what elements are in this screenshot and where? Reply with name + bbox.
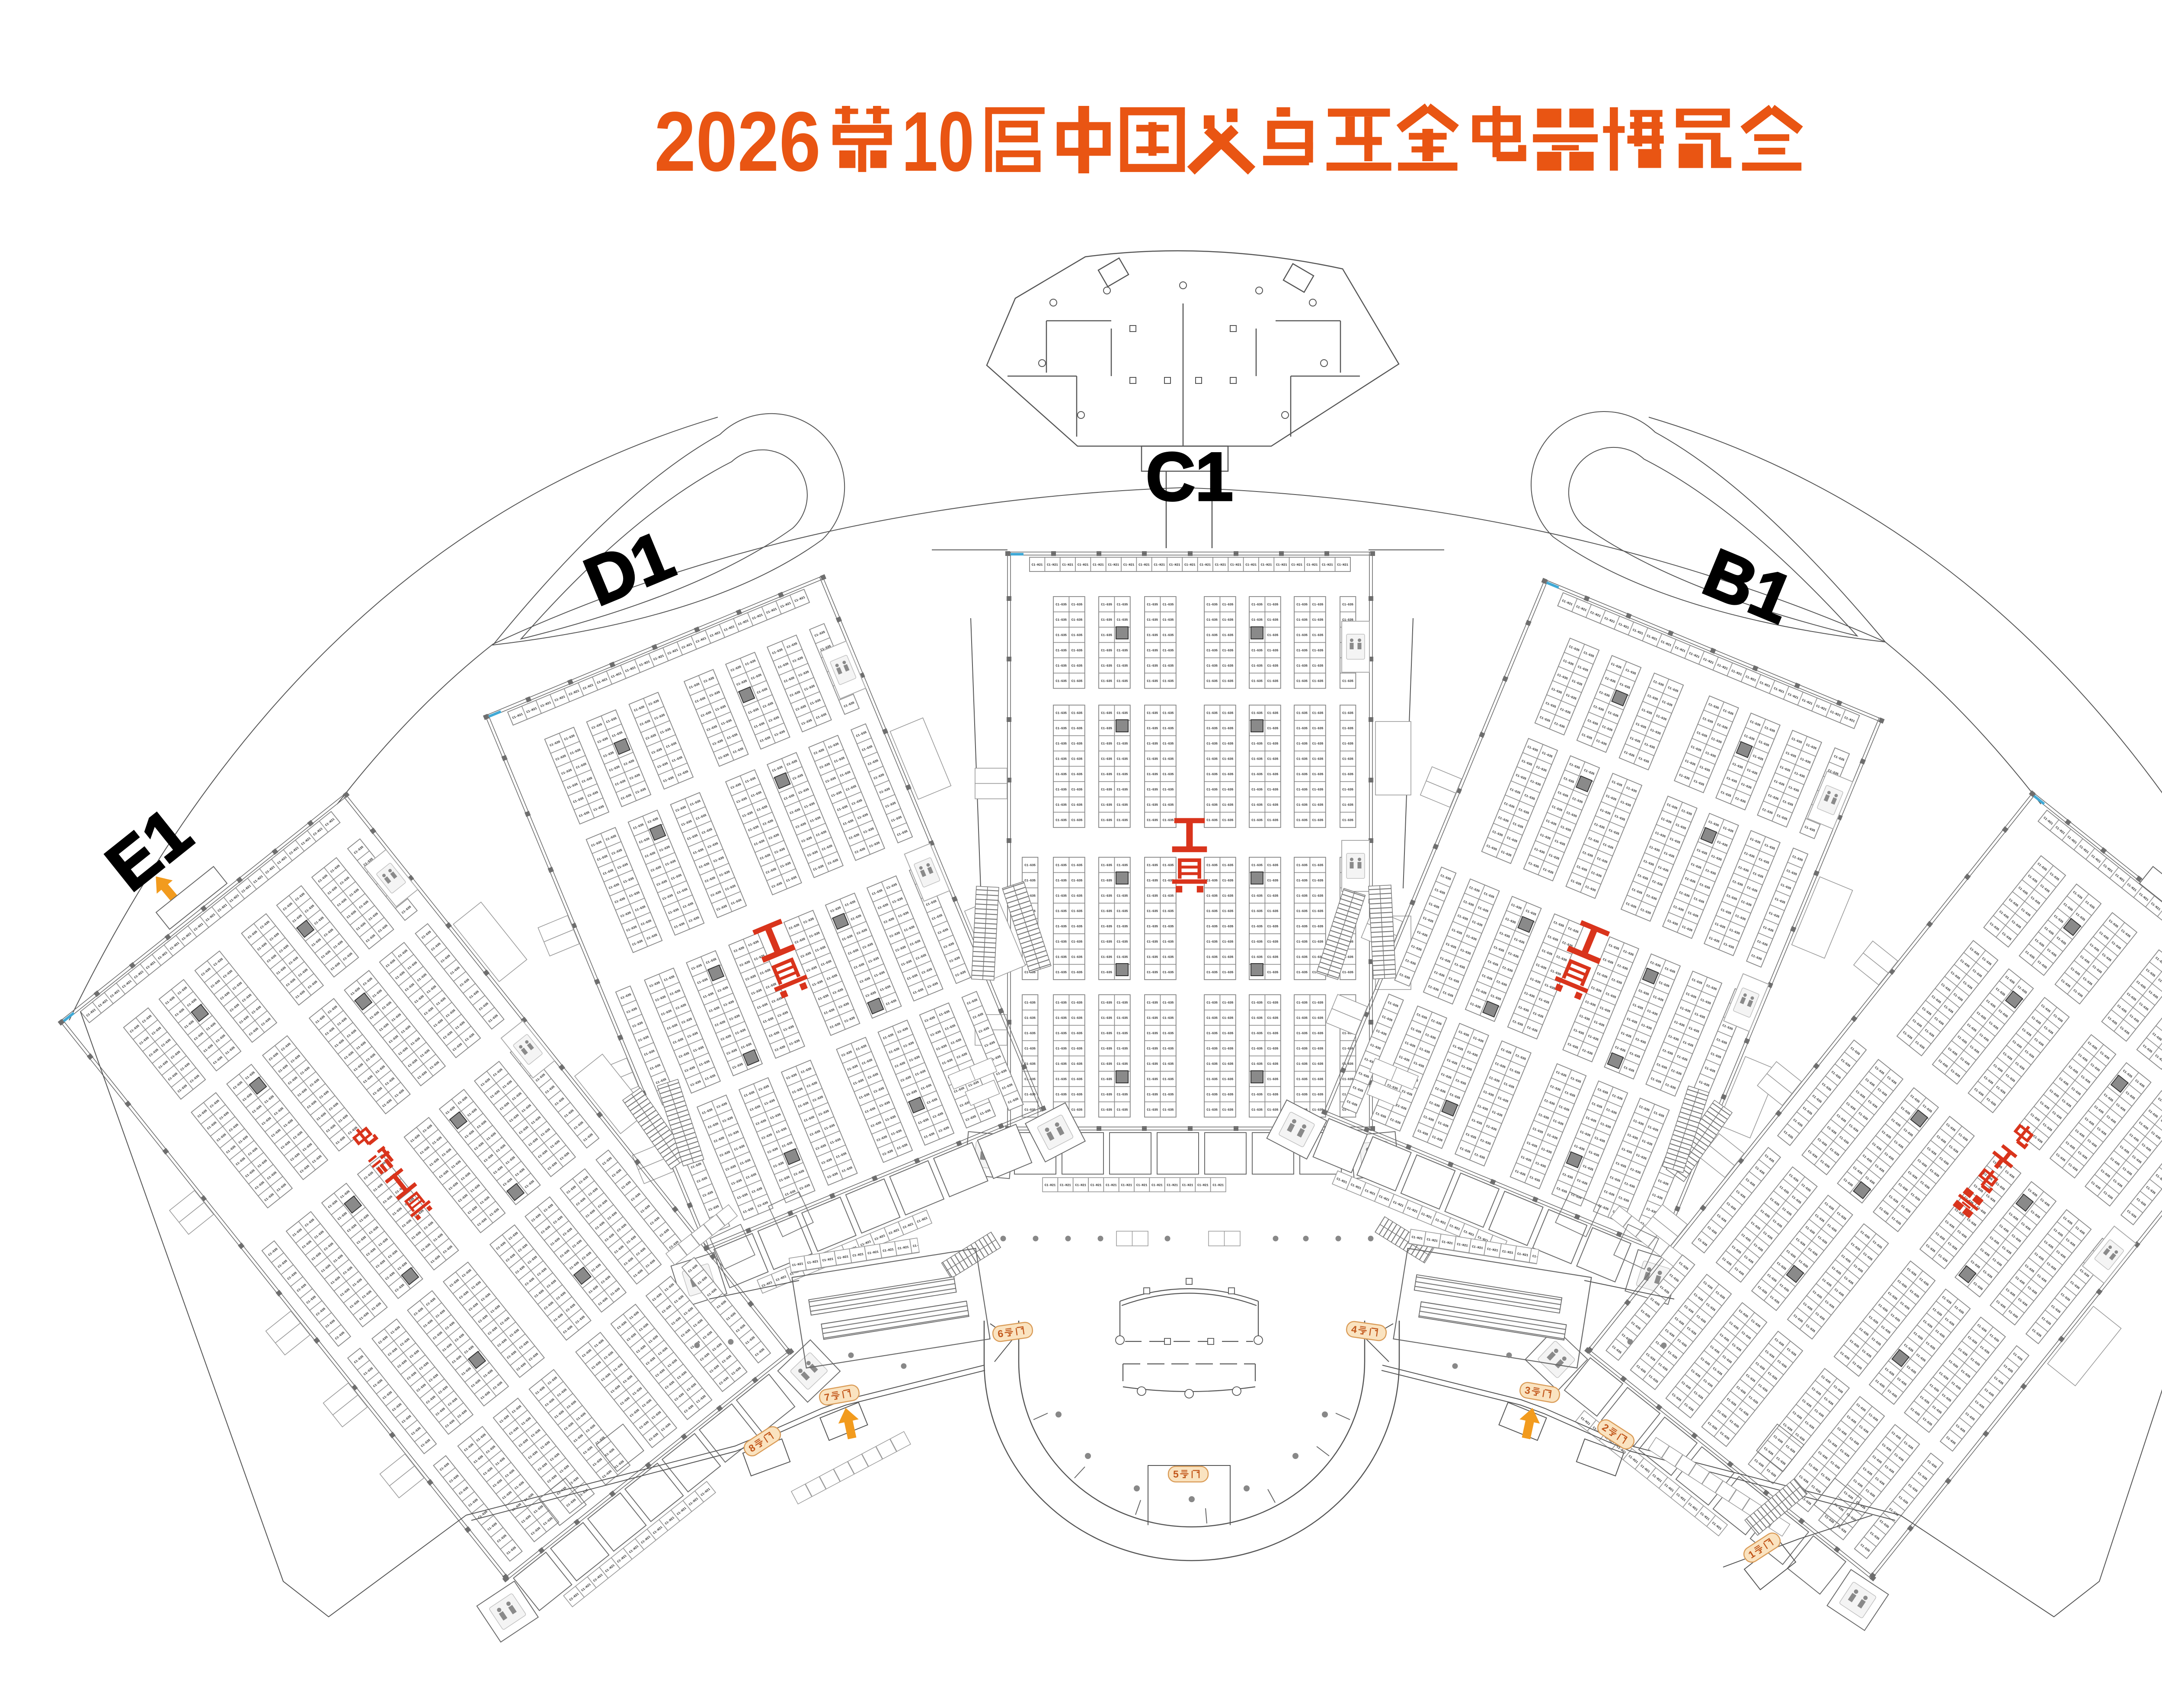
- svg-text:C1: C1: [1146, 439, 1233, 515]
- svg-text:10: 10: [902, 94, 974, 189]
- svg-text:2026: 2026: [654, 94, 821, 189]
- svg-text:5: 5: [1173, 1469, 1179, 1480]
